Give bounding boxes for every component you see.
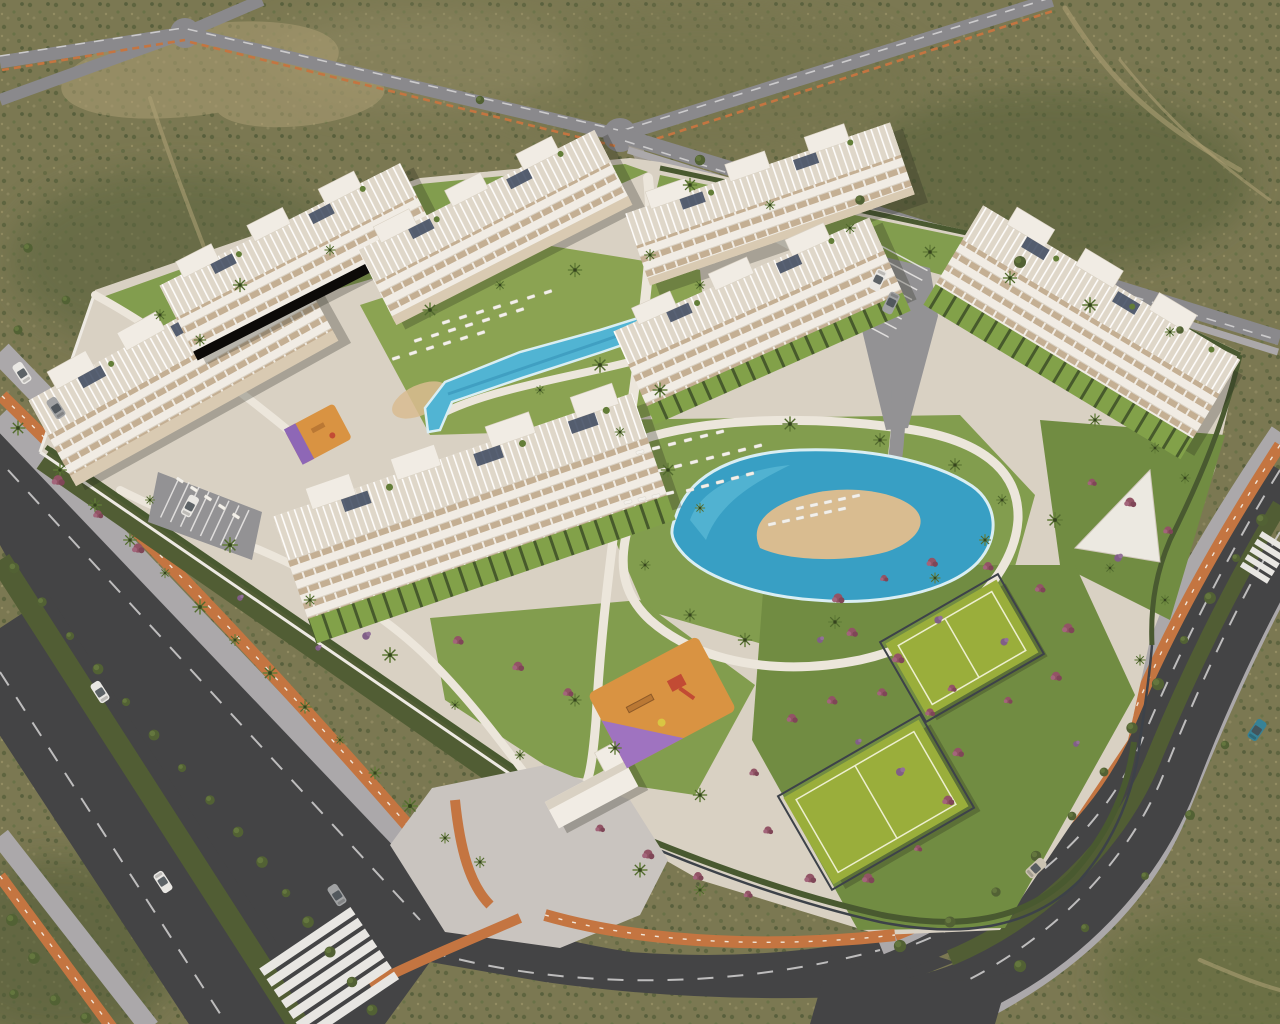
warm-light-overlay	[0, 0, 1280, 1024]
aerial-render	[0, 0, 1280, 1024]
screenshot-root	[0, 0, 1280, 1024]
